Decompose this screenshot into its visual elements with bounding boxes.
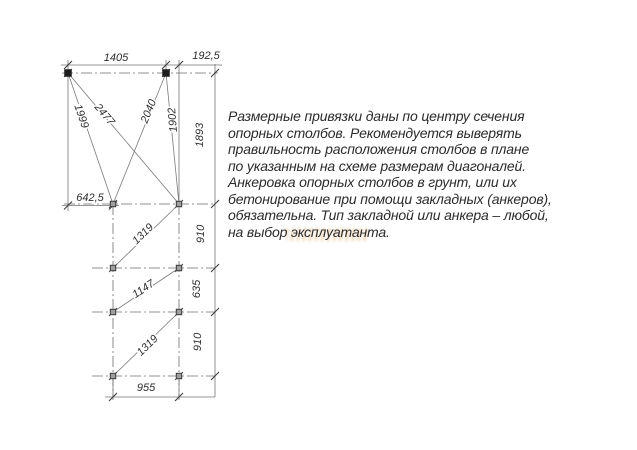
note-line: Анкеровка опорных столбов в грунт, или и… — [228, 174, 552, 191]
note-line: опорных столбов. Рекомендуется выверять — [228, 125, 552, 142]
post-marker — [176, 201, 182, 207]
dim-right-offset-label: 192,5 — [192, 50, 220, 62]
post-marker — [110, 309, 116, 315]
diagonal-label: 1319 — [135, 333, 161, 359]
note-line: обязательна. Тип закладной или анкера – … — [228, 207, 552, 224]
note-line: по указанным на схеме размерам диагонале… — [228, 158, 552, 175]
post-marker — [65, 70, 72, 77]
dim-row2-height-label: 910 — [195, 224, 207, 243]
post-marker — [110, 373, 116, 379]
note-line: на выбор эксплуатанта. — [228, 224, 552, 241]
diagonal-label: 1902 — [166, 107, 180, 132]
post-marker — [110, 265, 116, 271]
dim-row3-height-label: 635 — [191, 279, 203, 298]
post-marker — [176, 265, 182, 271]
diagonal-label: 2040 — [138, 97, 159, 126]
note-text: Размерные привязки даны по центру сечени… — [228, 108, 552, 240]
dim-bottom-span-label: 955 — [137, 382, 156, 394]
dim-top-span-label: 1405 — [104, 52, 129, 64]
dim-row4-height-label: 910 — [192, 332, 204, 351]
post-marker — [176, 309, 182, 315]
dim-left-offset-label: 642,5 — [76, 192, 104, 204]
diagonal-label: 1319 — [130, 221, 156, 247]
post-marker — [163, 70, 170, 77]
diagonal-label: 1147 — [130, 277, 157, 301]
diagonal-label: 1999 — [71, 103, 90, 130]
post-marker — [176, 373, 182, 379]
dim-row1-height-label: 1893 — [194, 122, 206, 147]
drawing-sheet: 1405 192,5 642,5 955 1893 910 635 910 19… — [0, 0, 637, 450]
note-line: правильность расположения столбов в план… — [228, 141, 552, 158]
note-line: бетонирование при помощи закладных (анке… — [228, 191, 552, 208]
note-line: Размерные привязки даны по центру сечени… — [228, 108, 552, 125]
dimension-labels: 1405 192,5 642,5 955 1893 910 635 910 19… — [71, 50, 220, 394]
post-marker — [110, 201, 116, 207]
